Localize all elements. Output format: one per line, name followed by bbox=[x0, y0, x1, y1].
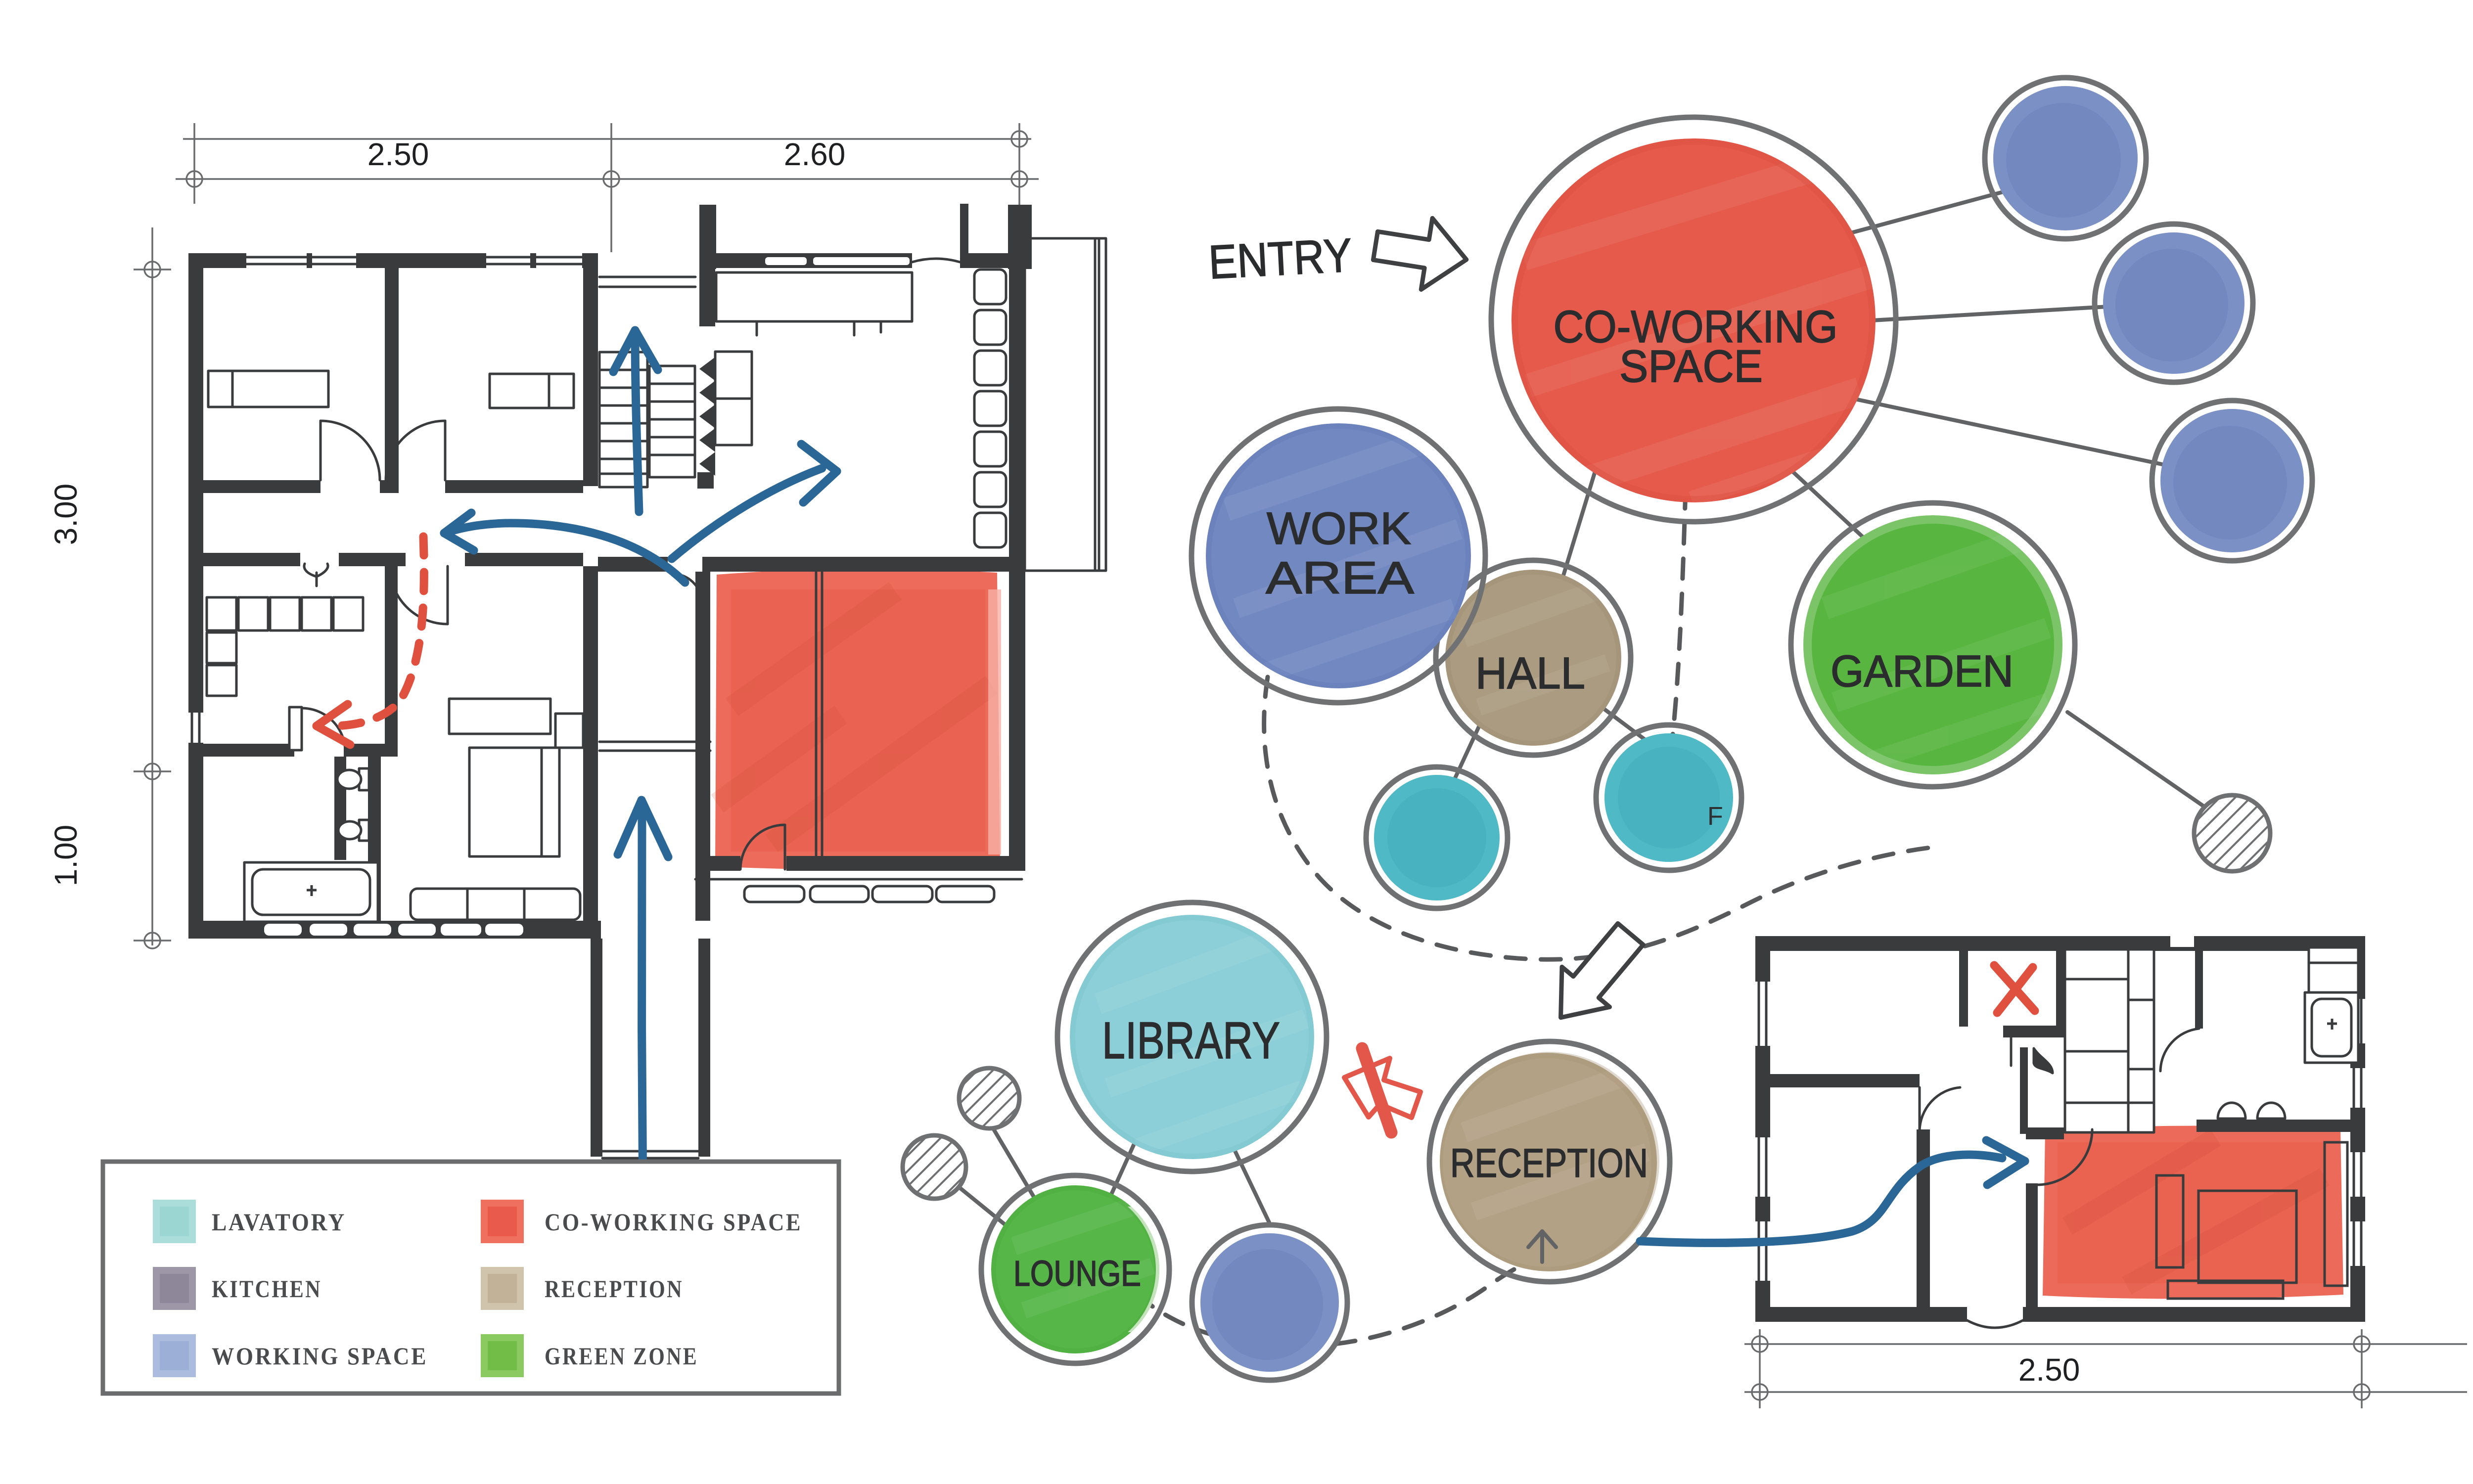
svg-text:F: F bbox=[1707, 802, 1723, 831]
svg-text:AREA: AREA bbox=[1266, 553, 1415, 603]
svg-text:2.50: 2.50 bbox=[2018, 1352, 2080, 1388]
svg-text:WORK: WORK bbox=[1267, 503, 1411, 554]
svg-text:KITCHEN: KITCHEN bbox=[212, 1275, 322, 1303]
svg-text:GREEN ZONE: GREEN ZONE bbox=[545, 1342, 698, 1370]
svg-text:RECEPTION: RECEPTION bbox=[545, 1275, 684, 1303]
svg-text:CO-WORKING SPACE: CO-WORKING SPACE bbox=[545, 1208, 802, 1236]
svg-text:2.60: 2.60 bbox=[784, 136, 846, 172]
svg-text:SPACE: SPACE bbox=[1619, 341, 1763, 392]
svg-text:LIBRARY: LIBRARY bbox=[1102, 1012, 1280, 1070]
svg-text:GARDEN: GARDEN bbox=[1831, 647, 2014, 696]
svg-text:LAVATORY: LAVATORY bbox=[212, 1208, 346, 1236]
svg-text:LOUNGE: LOUNGE bbox=[1013, 1254, 1141, 1294]
svg-text:1.00: 1.00 bbox=[48, 825, 84, 887]
svg-text:ENTRY: ENTRY bbox=[1207, 228, 1353, 289]
svg-text:WORKING SPACE: WORKING SPACE bbox=[212, 1342, 428, 1370]
svg-text:HALL: HALL bbox=[1475, 649, 1585, 698]
svg-text:RECEPTION: RECEPTION bbox=[1450, 1141, 1648, 1186]
svg-text:2.50: 2.50 bbox=[367, 136, 429, 172]
svg-text:3.00: 3.00 bbox=[48, 484, 84, 545]
